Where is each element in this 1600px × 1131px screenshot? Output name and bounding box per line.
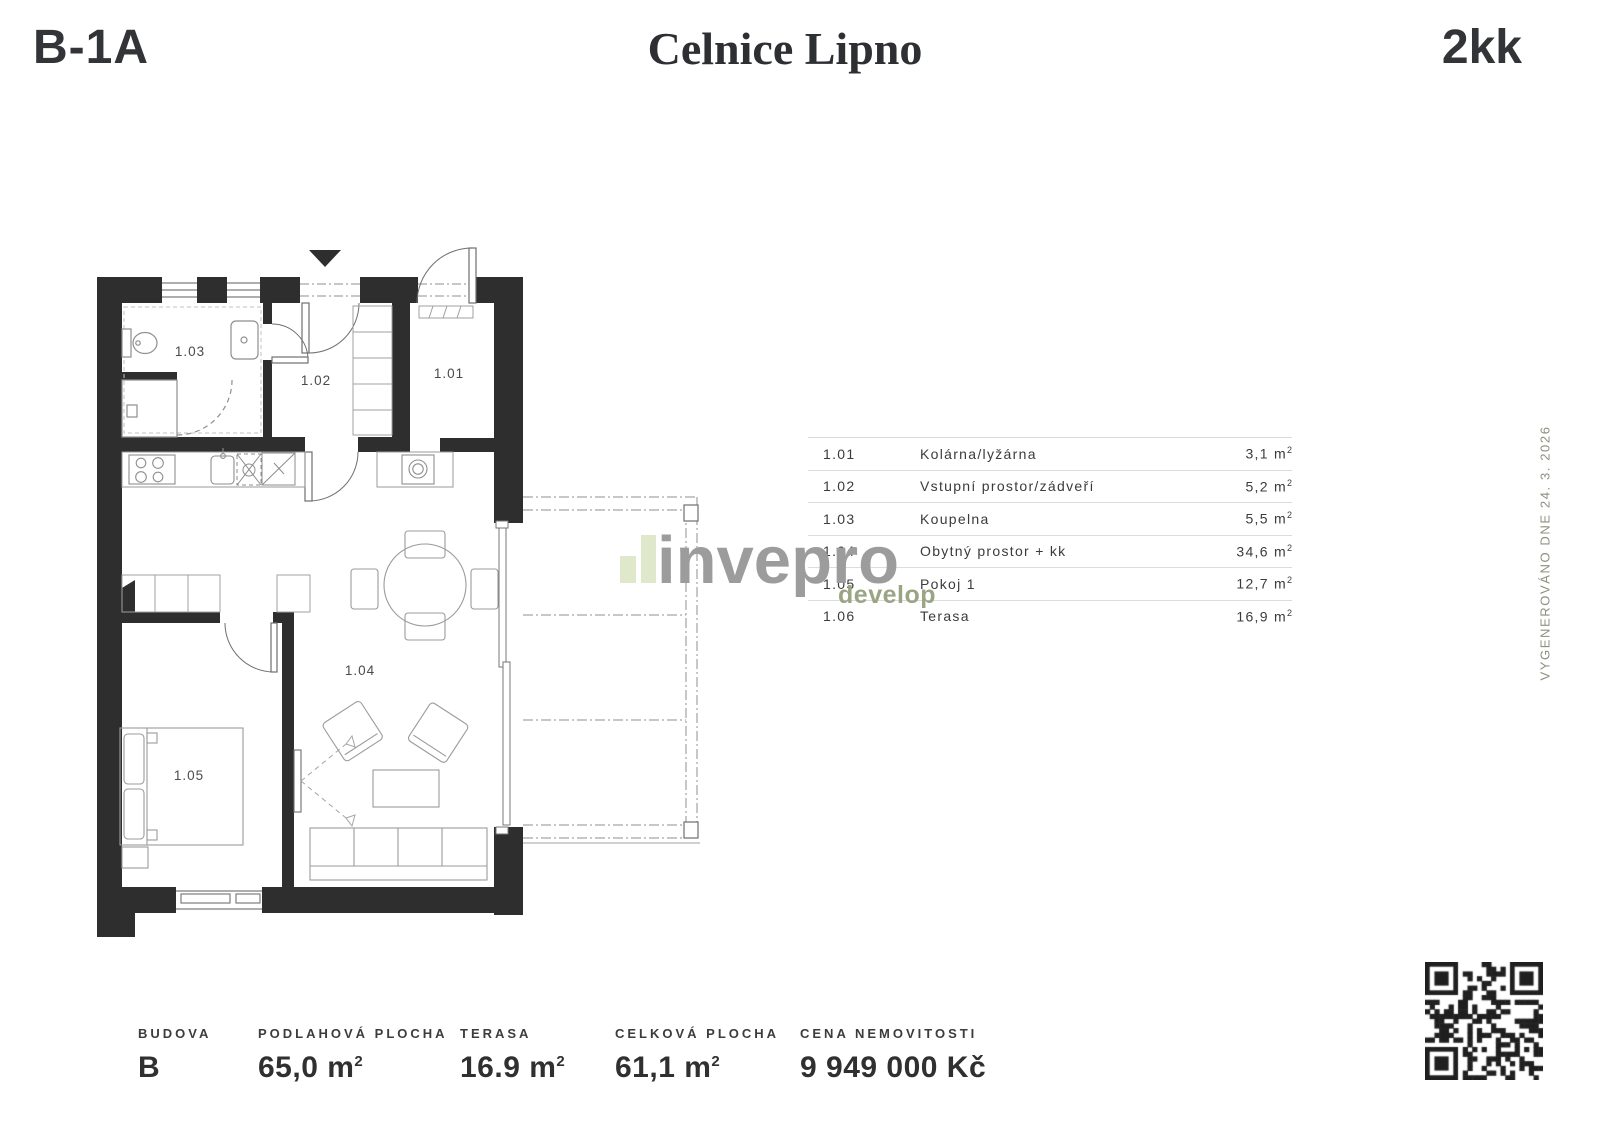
footer-value: 65,0 m2 [258, 1051, 448, 1085]
unit-code: B-1A [33, 20, 149, 75]
footer-item-terrace: TERASA 16.9 m2 [460, 1026, 565, 1085]
footer-label: BUDOVA [138, 1026, 211, 1041]
room-id: 1.03 [808, 511, 920, 527]
closet-icon [353, 306, 392, 435]
sliding-door [496, 521, 510, 834]
table-row: 1.04 Obytný prostor + kk 34,6 m2 [808, 535, 1292, 568]
room-area: 16,9 m2 [1236, 608, 1292, 625]
bed-icon [120, 728, 243, 868]
footer-value: 9 949 000 Kč [800, 1051, 986, 1085]
table-row: 1.05 Pokoj 1 12,7 m2 [808, 567, 1292, 600]
terrace-outline [523, 497, 697, 838]
footer-label: TERASA [460, 1026, 565, 1041]
sofa-icon [310, 828, 487, 880]
room-name: Terasa [920, 608, 1236, 624]
room-name: Obytný prostor + kk [920, 543, 1236, 559]
floor-plan-drawing: 1.01 1.02 1.03 1.04 1.05 [90, 225, 705, 940]
corner-cabinet-icon [262, 453, 295, 485]
room-id: 1.01 [808, 446, 920, 462]
plan-room-label: 1.01 [434, 366, 464, 381]
room-name: Vstupní prostor/zádveří [920, 478, 1245, 494]
stove-icon [129, 455, 175, 484]
room-id: 1.04 [808, 543, 920, 559]
coffee-table-icon [373, 770, 439, 807]
plan-room-label: 1.03 [175, 344, 205, 359]
footer-item-price: CENA NEMOVITOSTI 9 949 000 Kč [800, 1026, 986, 1085]
footer-item-building: BUDOVA B [138, 1026, 211, 1085]
footer-item-total-area: CELKOVÁ PLOCHA 61,1 m2 [615, 1026, 779, 1085]
room-name: Kolárna/lyžárna [920, 446, 1245, 462]
armchair-icon [407, 702, 469, 764]
layout-type-badge: 2kk [1442, 20, 1522, 75]
sink-icon [231, 321, 258, 359]
plan-room-label: 1.04 [345, 663, 375, 678]
tv-icon [294, 750, 301, 812]
armchair-icon [322, 700, 384, 762]
entry-arrow-icon [309, 250, 341, 267]
dining-table-icon [351, 531, 498, 640]
room-name: Pokoj 1 [920, 576, 1236, 592]
qr-code [1425, 962, 1543, 1080]
doors [225, 248, 476, 672]
kitchen-sink-icon [211, 448, 234, 484]
generated-date-note: VYGENEROVÁNO DNE 24. 3. 2026 [1538, 425, 1553, 680]
room-id: 1.05 [808, 576, 920, 592]
floor-plan-sheet: B-1A Celnice Lipno 2kk [0, 0, 1600, 1131]
footer-item-floor-area: PODLAHOVÁ PLOCHA 65,0 m2 [258, 1026, 448, 1085]
room-id: 1.02 [808, 478, 920, 494]
room-id: 1.06 [808, 608, 920, 624]
plan-room-label: 1.05 [174, 768, 204, 783]
room-area: 12,7 m2 [1236, 575, 1292, 592]
table-row: 1.06 Terasa 16,9 m2 [808, 600, 1292, 633]
room-area: 5,5 m2 [1245, 510, 1292, 527]
footer-value: 61,1 m2 [615, 1051, 779, 1085]
tv-view-lines [301, 744, 346, 818]
table-row: 1.01 Kolárna/lyžárna 3,1 m2 [808, 437, 1292, 470]
kitchen-counter [122, 452, 453, 487]
footer-value: B [138, 1051, 211, 1085]
wardrobe-icon [122, 575, 310, 612]
toilet-icon [122, 329, 157, 357]
footer-label: PODLAHOVÁ PLOCHA [258, 1026, 448, 1041]
room-area: 3,1 m2 [1245, 445, 1292, 462]
room-area: 5,2 m2 [1245, 478, 1292, 495]
bike-rack-icon [419, 306, 473, 318]
shower-icon [122, 380, 232, 437]
room-name: Koupelna [920, 511, 1245, 527]
room-area: 34,6 m2 [1236, 543, 1292, 560]
project-title: Celnice Lipno [648, 22, 923, 75]
room-legend-table: 1.01 Kolárna/lyžárna 3,1 m2 1.02 Vstupní… [808, 437, 1292, 632]
dishwasher-icon [237, 454, 261, 485]
plan-room-label: 1.02 [301, 373, 331, 388]
footer-label: CELKOVÁ PLOCHA [615, 1026, 779, 1041]
footer-label: CENA NEMOVITOSTI [800, 1026, 986, 1041]
footer-value: 16.9 m2 [460, 1051, 565, 1085]
table-row: 1.03 Koupelna 5,5 m2 [808, 502, 1292, 535]
table-row: 1.02 Vstupní prostor/zádveří 5,2 m2 [808, 470, 1292, 503]
oven-icon [402, 455, 434, 484]
